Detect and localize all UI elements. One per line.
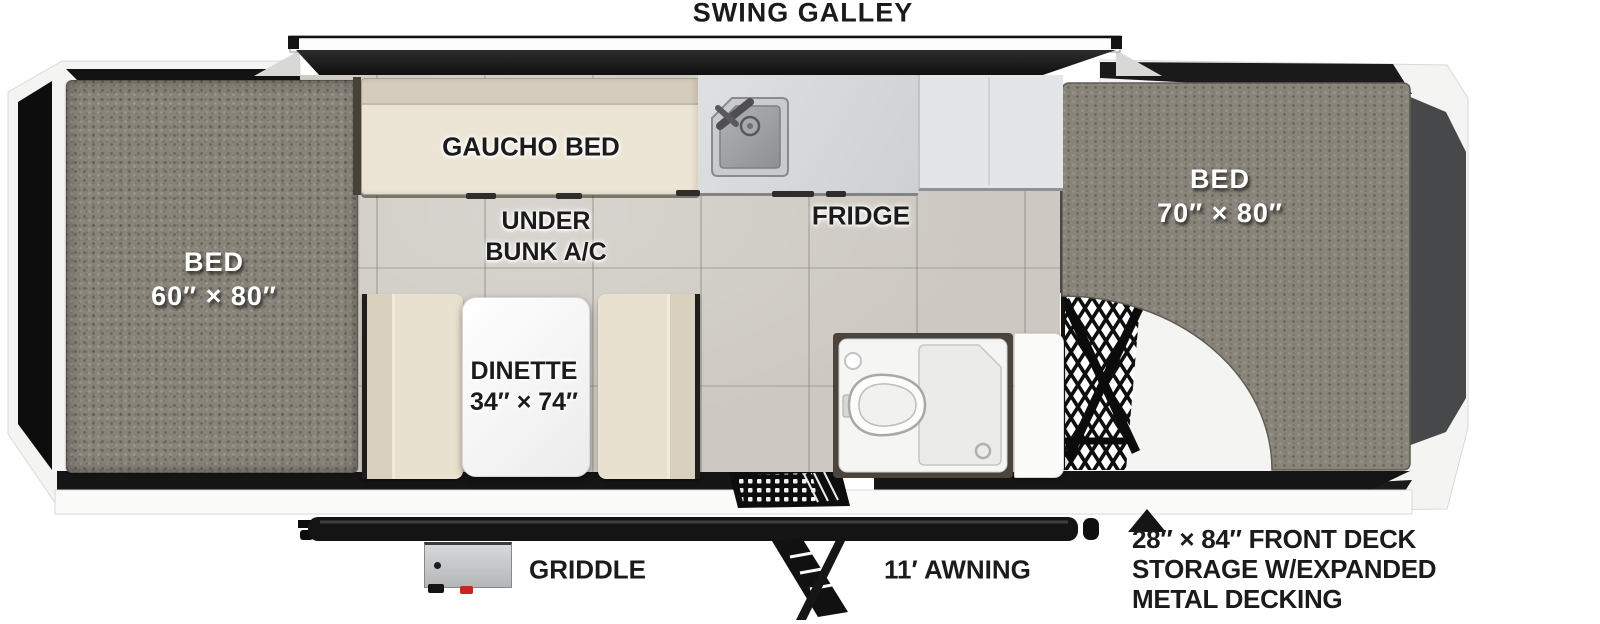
griddle-knob-red <box>460 586 473 594</box>
under-bunk-ac-label: UNDER BUNK A/C <box>485 206 606 268</box>
hinge-mark <box>466 193 496 199</box>
deck-note-line1: 28″ × 84″ FRONT DECK <box>1132 524 1436 554</box>
hinge-mark <box>826 191 846 197</box>
gaucho-bed-label: GAUCHO BED <box>442 132 620 163</box>
front-bed-name: BED <box>151 245 277 279</box>
swing-galley-label: SWING GALLEY <box>693 0 914 29</box>
fridge-label: FRIDGE <box>812 201 910 232</box>
fridge-cabinet <box>918 75 1063 191</box>
rear-bed-name: BED <box>1157 162 1283 196</box>
griddle-burner-dot <box>434 562 441 569</box>
griddle-knob-black <box>428 584 444 593</box>
fold-step-icon <box>772 538 848 620</box>
dinette-bench-right <box>598 294 700 479</box>
front-deck-note: 28″ × 84″ FRONT DECK STORAGE W/EXPANDED … <box>1132 524 1436 614</box>
gaucho-side-wall <box>353 77 361 195</box>
wardrobe-cabinet <box>1014 333 1064 478</box>
floorplan: SWING GALLEY BED 60″ × 80″ BED 70″ × 80″… <box>0 0 1600 624</box>
dinette-size: 34″ × 74″ <box>470 387 578 418</box>
dinette-bench-left <box>362 294 463 479</box>
under-bunk-line2: BUNK A/C <box>485 237 606 268</box>
under-bunk-line1: UNDER <box>485 206 606 237</box>
front-bed-size: 60″ × 80″ <box>151 279 277 313</box>
dinette-name: DINETTE <box>470 356 578 387</box>
fridge-door-seam <box>988 77 990 185</box>
awning-rail <box>298 517 1099 541</box>
expanded-metal-mesh <box>1062 293 1141 470</box>
bathroom <box>833 333 1013 478</box>
hinge-mark <box>556 193 582 199</box>
sink-icon <box>706 92 798 186</box>
swing-galley-bar <box>254 36 1162 77</box>
hinge-mark <box>676 190 700 196</box>
deck-note-line2: STORAGE W/EXPANDED <box>1132 554 1436 584</box>
dinette-label: DINETTE 34″ × 74″ <box>470 356 578 418</box>
hinge-mark <box>772 191 814 197</box>
awning-label: 11′ AWNING <box>884 555 1031 586</box>
shower-pan-icon <box>919 345 1001 465</box>
front-bed-label: BED 60″ × 80″ <box>151 245 277 313</box>
deck-note-line3: METAL DECKING <box>1132 584 1436 614</box>
entry-step-icon <box>728 467 850 508</box>
rear-bed-label: BED 70″ × 80″ <box>1157 162 1283 230</box>
griddle-label: GRIDDLE <box>529 555 646 586</box>
rear-bed-size: 70″ × 80″ <box>1157 196 1283 230</box>
